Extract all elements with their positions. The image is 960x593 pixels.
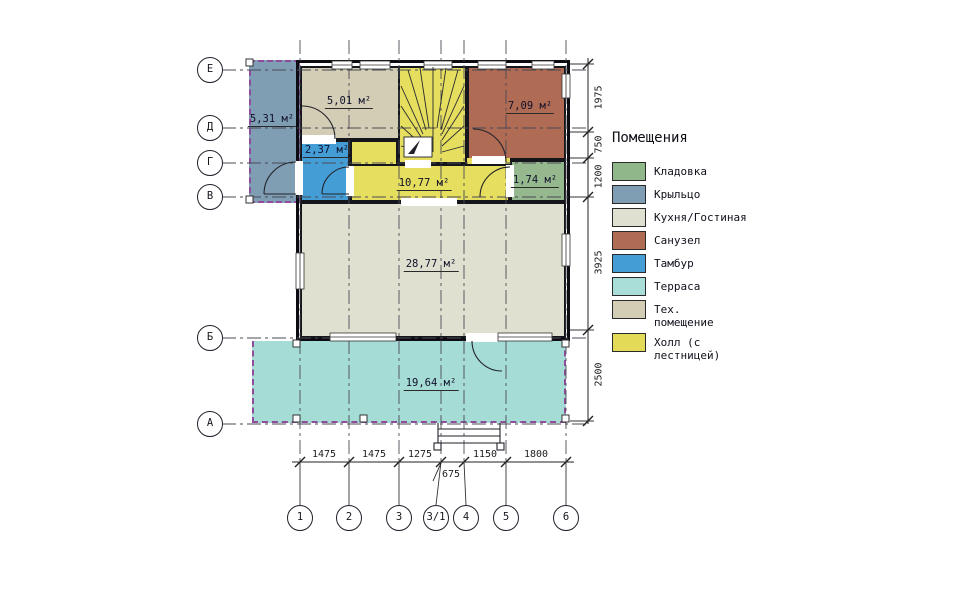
dimension-label-bottom-0: 1475 (304, 449, 344, 460)
axis-bubble-row-g: Г (197, 150, 223, 176)
legend-swatch-hall (612, 333, 646, 352)
axis-bubble-row-b: Б (197, 325, 223, 351)
dimension-label-right-2: 1200 (594, 155, 605, 199)
axis-bubble-col-6: 6 (553, 505, 579, 531)
legend: Помещения Кладовка Крыльцо Кухня/Гостина… (612, 130, 822, 366)
legend-item-label: Холл (с лестницей) (654, 333, 734, 362)
legend-item-label: Тамбур (654, 254, 694, 270)
legend-item-hall: Холл (с лестницей) (612, 333, 822, 362)
dimension-label-bottom-3: 1150 (465, 449, 505, 460)
legend-item-tech: Тех. помещение (612, 300, 822, 329)
axis-bubble-col-1: 1 (287, 505, 313, 531)
legend-swatch-tech (612, 300, 646, 319)
axis-bubble-col-5: 5 (493, 505, 519, 531)
legend-swatch-tambur (612, 254, 646, 273)
axis-stub-lines (300, 64, 594, 505)
room-area-label-hall: 10,77 м² (397, 177, 452, 191)
legend-swatch-kladovka (612, 162, 646, 181)
dimension-label-right-4: 2500 (594, 353, 605, 397)
legend-swatch-sanuzel (612, 231, 646, 250)
dimension-label-bottom-2: 1275 (400, 449, 440, 460)
room-area-label-kitchen: 28,77 м² (404, 258, 459, 272)
axis-bubble-row-d: Д (197, 115, 223, 141)
legend-item-tambur: Тамбур (612, 254, 822, 273)
axis-bubble-col-3: 3 (386, 505, 412, 531)
room-area-label-tech: 5,01 м² (325, 95, 373, 109)
room-area-label-terrace: 19,64 м² (404, 377, 459, 391)
legend-item-kryltso: Крыльцо (612, 185, 822, 204)
room-area-label-kladovka: 1,74 м² (511, 174, 559, 188)
legend-title: Помещения (612, 130, 822, 146)
staircase (401, 67, 464, 157)
legend-item-kitchen: Кухня/Гостиная (612, 208, 822, 227)
legend-item-label: Кухня/Гостиная (654, 208, 747, 224)
legend-item-terrace: Терраса (612, 277, 822, 296)
room-area-label-sanuzel: 7,09 м² (506, 100, 554, 114)
legend-item-label: Крыльцо (654, 185, 700, 201)
legend-item-sanuzel: Санузел (612, 231, 822, 250)
dimension-label-offset-675: 675 (436, 469, 466, 480)
wall-openings (295, 135, 514, 342)
entry-steps (434, 423, 504, 450)
axis-bubble-col-2: 2 (336, 505, 362, 531)
room-area-label-porch: 5,31 м² (248, 113, 296, 127)
legend-item-label: Терраса (654, 277, 700, 293)
dimension-label-right-0: 1975 (594, 76, 605, 120)
legend-item-label: Кладовка (654, 162, 707, 178)
axis-bubble-row-v: В (197, 184, 223, 210)
legend-item-label: Санузел (654, 231, 700, 247)
legend-swatch-kryltso (612, 185, 646, 204)
door-arcs (264, 106, 510, 371)
legend-swatch-kitchen (612, 208, 646, 227)
room-area-label-tambur: 2,37 м² (303, 144, 351, 158)
dimension-label-right-3: 3925 (594, 241, 605, 285)
axis-bubble-col-31: 3/1 (423, 505, 449, 531)
axis-bubble-row-a: А (197, 411, 223, 437)
legend-swatch-terrace (612, 277, 646, 296)
floor-plan-drawing: 5,31 м² 5,01 м² 7,09 м² 2,37 м² 10,77 м²… (0, 0, 960, 593)
dimension-label-bottom-1: 1475 (354, 449, 394, 460)
axis-bubble-col-4: 4 (453, 505, 479, 531)
legend-item-kladovka: Кладовка (612, 162, 822, 181)
dimension-label-bottom-4: 1800 (516, 449, 556, 460)
axis-bubble-row-e: Е (197, 57, 223, 83)
legend-item-label: Тех. помещение (654, 300, 734, 329)
